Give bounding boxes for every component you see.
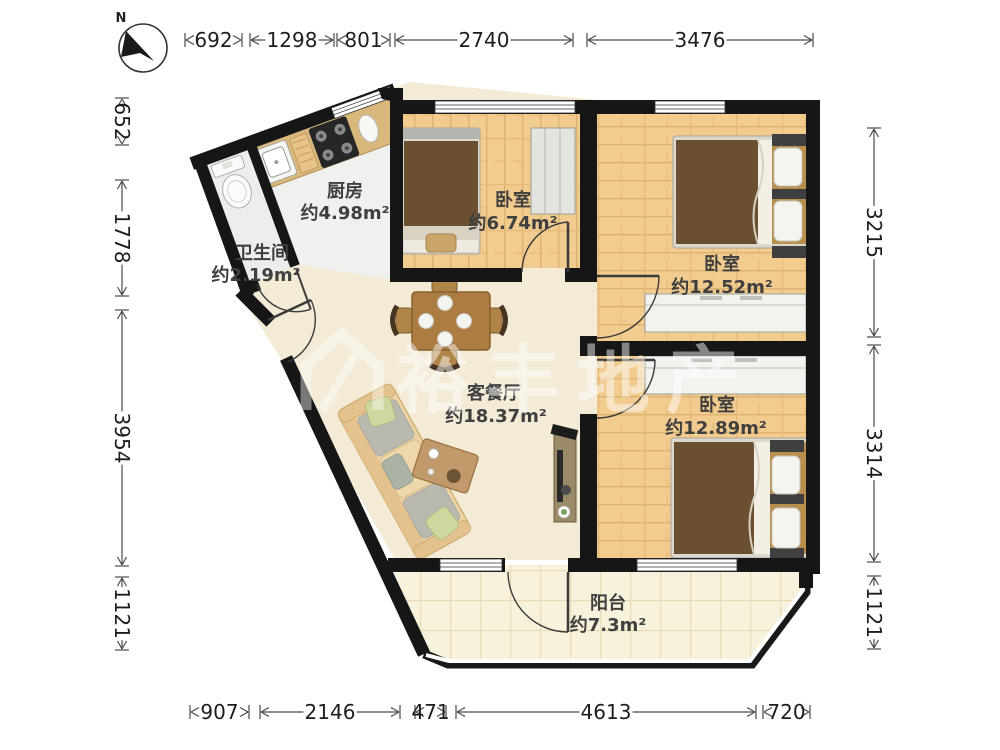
- floor-plan-svg: 厨房 约4.98m² 卫生间 约2.19m² 卧室 约6.74m² 卧室 约12…: [0, 0, 1000, 750]
- wall-bed1-right: [580, 100, 597, 276]
- balcony-area: 约7.3m²: [570, 614, 647, 636]
- dim-value: 3215: [862, 207, 886, 258]
- dim-right-2: 1121: [862, 576, 886, 649]
- dim-value: 720: [767, 700, 805, 724]
- watermark-text: 裕丰地产: [396, 338, 756, 424]
- wall-kitchen-right: [390, 88, 403, 282]
- kitchen-name: 厨房: [327, 180, 363, 202]
- dim-left-0: 652: [110, 98, 134, 145]
- dim-value: 907: [200, 700, 238, 724]
- wall-bed1-bottom-right: [565, 268, 597, 282]
- dim-value: 1298: [267, 28, 318, 52]
- dim-right-1: 3314: [862, 345, 886, 562]
- compass-north-label: N: [116, 11, 127, 26]
- dim-top-1: 1298: [250, 28, 334, 52]
- floor-plan-page: 厨房 约4.98m² 卫生间 约2.19m² 卧室 约6.74m² 卧室 约12…: [0, 0, 1000, 750]
- dim-value: 652: [110, 102, 134, 140]
- bedroom-top-area: 约6.74m²: [468, 212, 557, 234]
- dim-bottom-2: 471: [411, 700, 449, 724]
- bedroom-bottom-window: [637, 559, 737, 571]
- dim-top-0: 692: [185, 28, 242, 52]
- bedroom-right-window: [655, 101, 725, 113]
- wardrobe-top-bedroom: [531, 128, 575, 214]
- bathroom-name: 卫生间: [235, 242, 289, 264]
- bed-single: [402, 128, 480, 254]
- tv-cabinet: [551, 424, 579, 522]
- wall-living-bottom-stub: [568, 558, 580, 572]
- living-balcony-window: [440, 559, 502, 571]
- wardrobe-right-bedroom: [645, 294, 806, 332]
- dim-bottom-0: 907: [190, 700, 249, 724]
- dim-value: 801: [344, 28, 382, 52]
- dim-value: 4613: [581, 700, 632, 724]
- dim-bottom-4: 720: [763, 700, 810, 724]
- dim-value: 3954: [110, 413, 134, 464]
- dim-value: 3314: [862, 428, 886, 479]
- dim-top-2: 801: [337, 28, 390, 52]
- bedroom-right-area: 约12.52m²: [671, 276, 773, 298]
- dim-top-4: 3476: [587, 28, 813, 52]
- dim-value: 692: [194, 28, 232, 52]
- wall-right: [806, 100, 820, 574]
- dim-value: 3476: [675, 28, 726, 52]
- wall-bed1-bottom-left: [390, 268, 522, 282]
- bathroom-area: 约2.19m²: [211, 264, 300, 286]
- kitchen-area: 约4.98m²: [300, 202, 389, 224]
- dim-right-0: 3215: [862, 128, 886, 337]
- bedroom-right-name: 卧室: [704, 253, 740, 275]
- dim-value: 2740: [459, 28, 510, 52]
- dim-left-2: 3954: [110, 310, 134, 566]
- dim-bottom-3: 4613: [456, 700, 756, 724]
- wall-bed3-left: [580, 414, 597, 562]
- dim-value: 2146: [305, 700, 356, 724]
- bed-double-right: [673, 134, 808, 258]
- dim-value: 471: [411, 700, 449, 724]
- dim-value: 1121: [862, 587, 886, 638]
- bed-double-bottom: [671, 438, 808, 560]
- dim-left-1: 1778: [110, 180, 134, 296]
- dim-top-3: 2740: [395, 28, 573, 52]
- bedroom-top-window: [435, 101, 575, 113]
- balcony-name: 阳台: [590, 592, 626, 614]
- dim-value: 1121: [110, 588, 134, 639]
- dim-left-3: 1121: [110, 577, 134, 650]
- dim-value: 1778: [110, 213, 134, 264]
- dim-bottom-1: 2146: [260, 700, 400, 724]
- bedroom-top-name: 卧室: [495, 189, 531, 211]
- compass: N: [116, 11, 167, 72]
